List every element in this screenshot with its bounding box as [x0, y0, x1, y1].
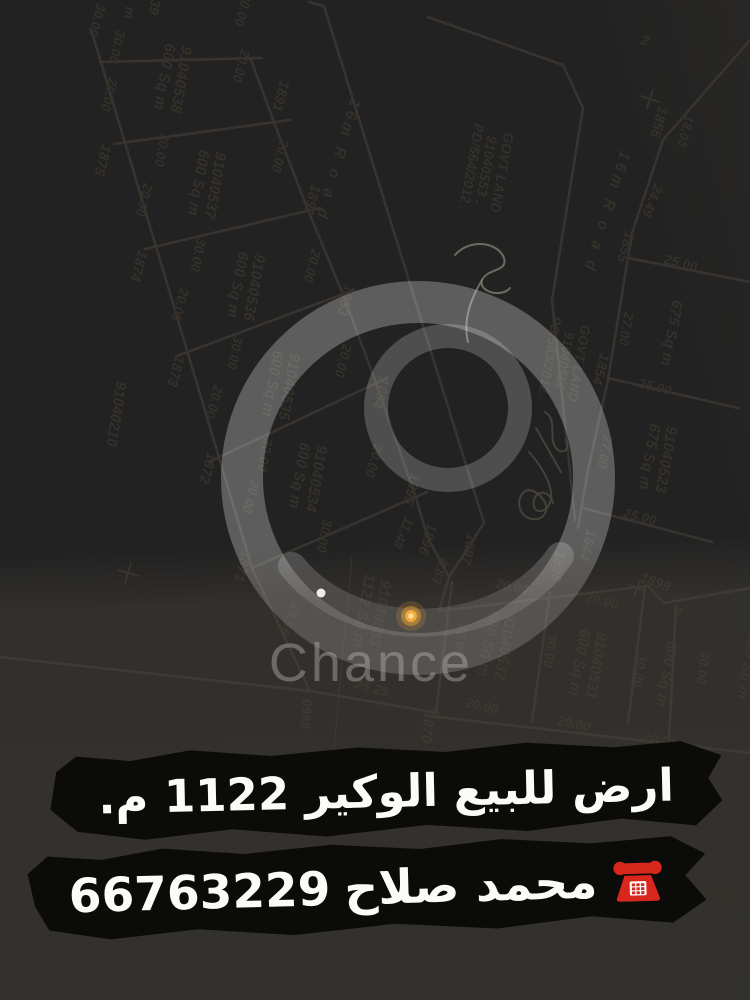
- plan-label: 25.25: [354, 676, 390, 700]
- marker-dot: [405, 610, 417, 622]
- plan-line: [91, 29, 252, 568]
- plot-label: 600 Sq m: [652, 640, 681, 709]
- plan-label: 30.00: [451, 622, 471, 657]
- plan-line: [252, 492, 427, 568]
- plan-line: [309, 2, 750, 611]
- plan-label: 20.00: [239, 479, 262, 515]
- contact-phone: 66763229: [68, 862, 331, 924]
- plan-label: 30.00: [254, 437, 275, 473]
- watermark-text: Chance: [269, 632, 473, 694]
- plan-label: 1871: [230, 549, 254, 584]
- plan-line: [252, 568, 310, 691]
- plan-line: [629, 580, 645, 596]
- plot-label: GOVT LAND 91040552 PD/563/2012 .: [534, 315, 594, 407]
- plan-label: 1894: [368, 376, 392, 411]
- plan-label: 28.58: [276, 601, 303, 638]
- plan-label: 20.00: [331, 343, 354, 379]
- plan-line: [114, 120, 290, 144]
- plan-label: 30.00: [187, 237, 208, 273]
- plan-label: 30.00: [313, 518, 334, 554]
- plot-label: 600 Sq m: [733, 632, 750, 701]
- plan-label: 91040210: [102, 380, 129, 448]
- plan-line: [100, 58, 262, 62]
- plan-label: 20.00: [362, 443, 385, 479]
- plot-label: 91040523 675 Sq m: [634, 422, 680, 495]
- plan-line: [669, 606, 676, 740]
- plan-label: 20.00: [268, 138, 291, 174]
- plan-label: 1898: [546, 549, 567, 583]
- plot-label: GOVT LAND 91040553 . PD/564/2012 .: [455, 122, 517, 218]
- plan-line: [455, 244, 510, 293]
- plan-line: [145, 208, 320, 249]
- plan-label: 30.00: [630, 653, 650, 688]
- plan-line: [519, 490, 546, 519]
- plan-label: 20.00: [132, 182, 155, 218]
- plan-label: 16m R o a d: [579, 149, 633, 276]
- plan-label: 30.00: [224, 335, 245, 371]
- plan-label: 1896: [414, 521, 439, 556]
- plan-line: [177, 290, 354, 356]
- plan-label: 39: [145, 0, 163, 16]
- marker-dot: [401, 606, 421, 626]
- plan-line: [529, 452, 553, 511]
- plan-label: 20.00: [229, 48, 252, 84]
- plot-label: 91040537 600 Sq m: [183, 148, 229, 221]
- plan-label: 11.48: [390, 515, 417, 551]
- plan-label: 1895: [399, 472, 423, 507]
- plan-label: 1893: [333, 283, 357, 318]
- contact-band: محمد صلاح 66763229: [27, 831, 707, 946]
- plan-label: 18.03: [674, 113, 696, 148]
- plan-label: 30.00: [540, 633, 560, 668]
- plan-label: 20.00: [97, 77, 120, 113]
- plan-line: [0, 657, 438, 713]
- contact-name: محمد صلاح: [344, 854, 598, 916]
- plan-label: 27.00: [595, 434, 616, 470]
- plan-label: 27.00: [616, 311, 637, 347]
- plan-label: 1870: [417, 710, 437, 744]
- marker-dot: [317, 589, 326, 598]
- plan-line: [466, 280, 482, 342]
- plan-label: 20.00: [494, 576, 530, 598]
- plan-label: 20.00: [231, 0, 254, 28]
- plan-line: [663, 40, 750, 140]
- plan-label: 20.00: [300, 248, 323, 284]
- plan-label: 25.00: [663, 252, 699, 275]
- plot-label: 91040531 600 Sq m: [564, 628, 610, 701]
- plan-label: 1872: [195, 451, 219, 486]
- plan-line: [583, 508, 712, 542]
- plan-label: m: [120, 6, 138, 21]
- plot-label: 91040532 600 Sq m: [473, 609, 519, 682]
- plan-line: [578, 140, 663, 528]
- plan-label: 20.00: [556, 713, 592, 735]
- plan-line: [251, 60, 449, 577]
- plot-label: 675 Sq m: [657, 299, 686, 368]
- plan-label: 1892: [299, 183, 323, 218]
- plan-label: 1873: [163, 354, 187, 389]
- plan-label: 1891: [268, 79, 292, 114]
- plan-line: [536, 428, 561, 472]
- marker-dot: [408, 613, 414, 619]
- plan-label: 8.83: [429, 556, 451, 586]
- plan-line: [428, 17, 583, 520]
- plan-label: 30.00: [151, 132, 172, 168]
- plan-label: 24.49: [639, 183, 666, 220]
- plan-label: 30.00: [693, 650, 713, 685]
- plan-line: [118, 563, 138, 583]
- plan-label: 20.00: [202, 384, 225, 420]
- plan-label: 1856: [646, 105, 670, 140]
- phone-icon: [611, 855, 666, 906]
- plan-label: 1844: [575, 528, 599, 563]
- plan-label: 2: [674, 605, 685, 621]
- plan-label: 20.00: [584, 590, 620, 612]
- plan-label: 20.00: [168, 287, 191, 323]
- plan-label: 0988: [297, 698, 315, 729]
- plot-label: 91040534 600 Sq m: [284, 441, 330, 514]
- plan-line: [532, 593, 550, 722]
- plan-label: 1897: [457, 532, 480, 567]
- plan-line: [628, 258, 750, 282]
- plan-label: 16m R o a d: [311, 96, 363, 223]
- listing-headline-band: ارض للبيع الوكير 1122 م.: [49, 736, 723, 845]
- plan-line: [608, 378, 738, 408]
- plan-label: 1875: [90, 143, 114, 178]
- marker-dot: [396, 601, 426, 631]
- plan-label: 30.00: [85, 2, 108, 38]
- plan-label: 1854: [588, 352, 612, 387]
- plan-label: 1899: [637, 570, 672, 596]
- plot-label: 91040533 1122 Sq m: [347, 572, 394, 651]
- plan-line: [628, 586, 645, 723]
- plan-label: 2: [639, 32, 650, 49]
- plot-label: 91040538 600 Sq m: [149, 42, 195, 115]
- plot-label: 91040536 600 Sq m: [222, 250, 268, 323]
- plan-line: [641, 90, 659, 108]
- plan-line: [436, 582, 452, 712]
- plan-label: 1874: [126, 249, 150, 284]
- plan-label: 20.00: [464, 695, 500, 717]
- listing-headline: ارض للبيع الوكير 1122 م.: [98, 758, 675, 824]
- photo-of-survey-plan: 30.00m3920.0030.0020.00187520.00187420.0…: [0, 0, 750, 1000]
- plan-label: 25.00: [637, 376, 673, 399]
- plan-label: 30.00: [106, 29, 128, 65]
- plan-line: [545, 412, 567, 452]
- plan-label: 1855: [613, 230, 637, 265]
- plot-label: 91040535 600 Sq m: [257, 349, 303, 422]
- plan-line: [332, 556, 352, 768]
- plan-line: [209, 378, 387, 462]
- plan-label: 25.00: [622, 506, 658, 529]
